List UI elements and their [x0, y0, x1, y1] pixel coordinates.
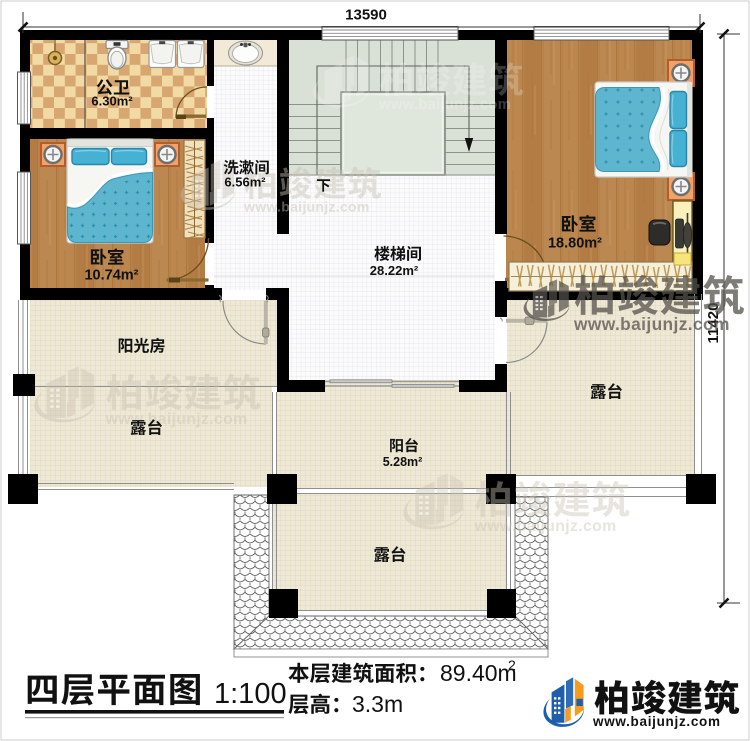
svg-text:89.40m: 89.40m — [440, 660, 517, 686]
svg-text:3.3m: 3.3m — [352, 691, 403, 717]
svg-text:5.28m²: 5.28m² — [383, 455, 423, 469]
svg-text:18.80m²: 18.80m² — [548, 236, 602, 252]
svg-text:2: 2 — [508, 657, 516, 673]
svg-text:6.30m²: 6.30m² — [91, 94, 133, 109]
svg-text:28.22m²: 28.22m² — [370, 263, 419, 278]
svg-text:13590: 13590 — [345, 7, 387, 24]
svg-text:10.74m²: 10.74m² — [84, 268, 138, 284]
svg-text:6.56m²: 6.56m² — [224, 175, 266, 190]
svg-text:1:100: 1:100 — [214, 678, 287, 710]
svg-text:www.baijunjz.com: www.baijunjz.com — [592, 714, 721, 729]
